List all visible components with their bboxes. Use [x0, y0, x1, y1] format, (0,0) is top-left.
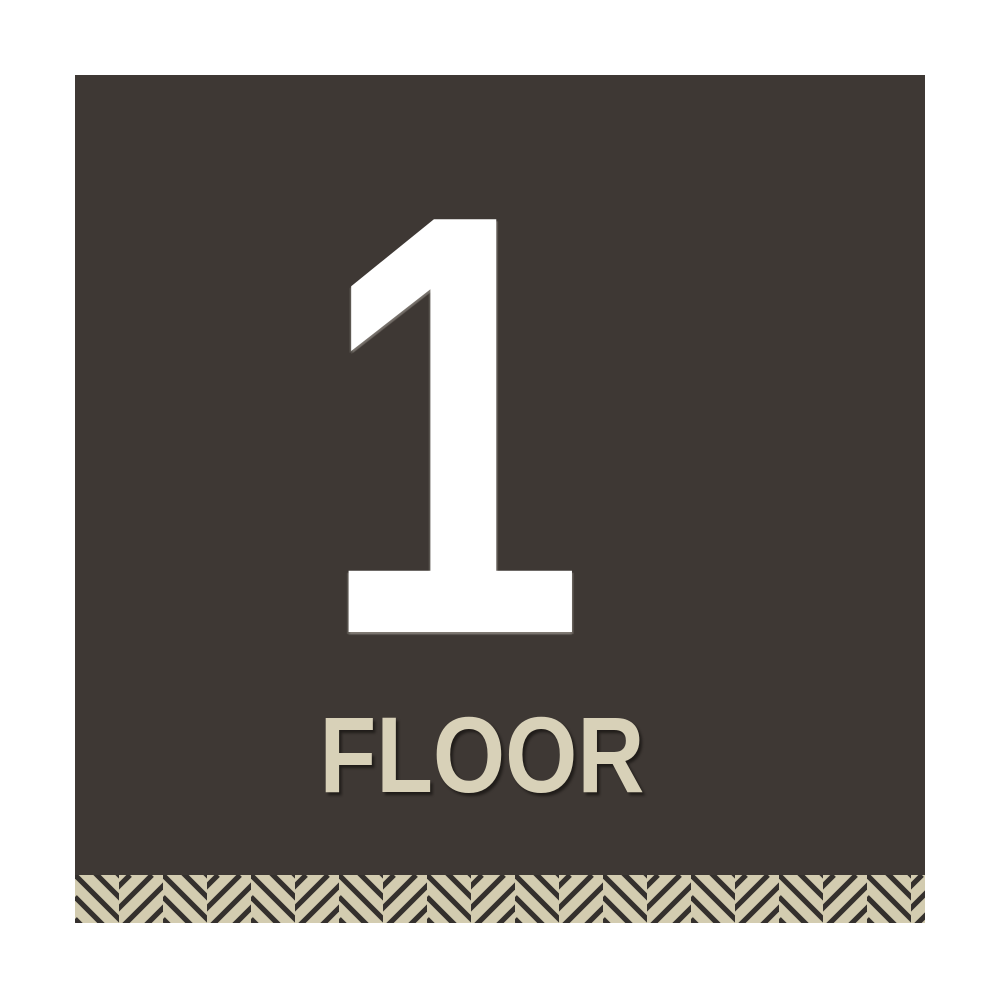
decorative-pattern-strip: [75, 875, 925, 923]
floor-label: FLOOR: [319, 701, 644, 809]
floor-label-row: FLOOR: [75, 701, 907, 809]
page-background: 1 FLOOR: [0, 0, 1000, 1000]
floor-number-row: 1: [75, 125, 925, 725]
herringbone-pattern: [75, 875, 925, 923]
floor-sign: 1 FLOOR: [75, 75, 925, 923]
floor-number: 1: [319, 125, 586, 725]
